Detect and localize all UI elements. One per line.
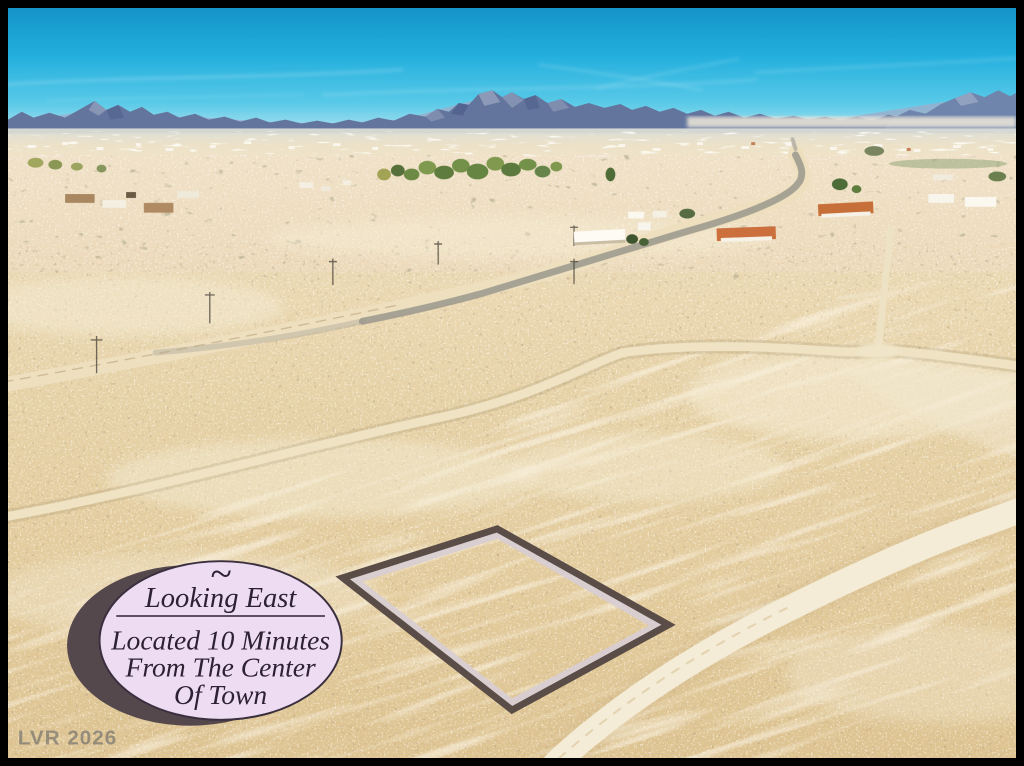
orange-roof-house-1 bbox=[818, 201, 874, 218]
badge-line-2: From The Center bbox=[125, 653, 317, 683]
orange-roof-house-2 bbox=[717, 226, 777, 242]
badge-line-1: Located 10 Minutes bbox=[110, 625, 330, 655]
watermark-text: LVR 2026 bbox=[18, 726, 117, 749]
white-warehouse bbox=[574, 229, 626, 245]
badge-line-3: Of Town bbox=[174, 680, 267, 710]
badge-heading: Looking East bbox=[144, 583, 298, 614]
photo-frame: ~ Looking East Located 10 Minutes From T… bbox=[0, 0, 1024, 766]
dry-lake-strip bbox=[687, 117, 1016, 128]
aerial-photo: ~ Looking East Located 10 Minutes From T… bbox=[8, 8, 1016, 758]
distant-town-specks bbox=[8, 131, 1016, 156]
